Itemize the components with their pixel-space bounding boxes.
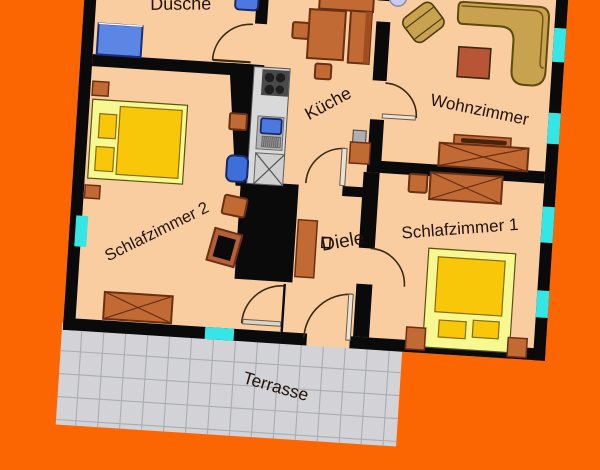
svg-text:Dusche: Dusche <box>150 0 211 14</box>
